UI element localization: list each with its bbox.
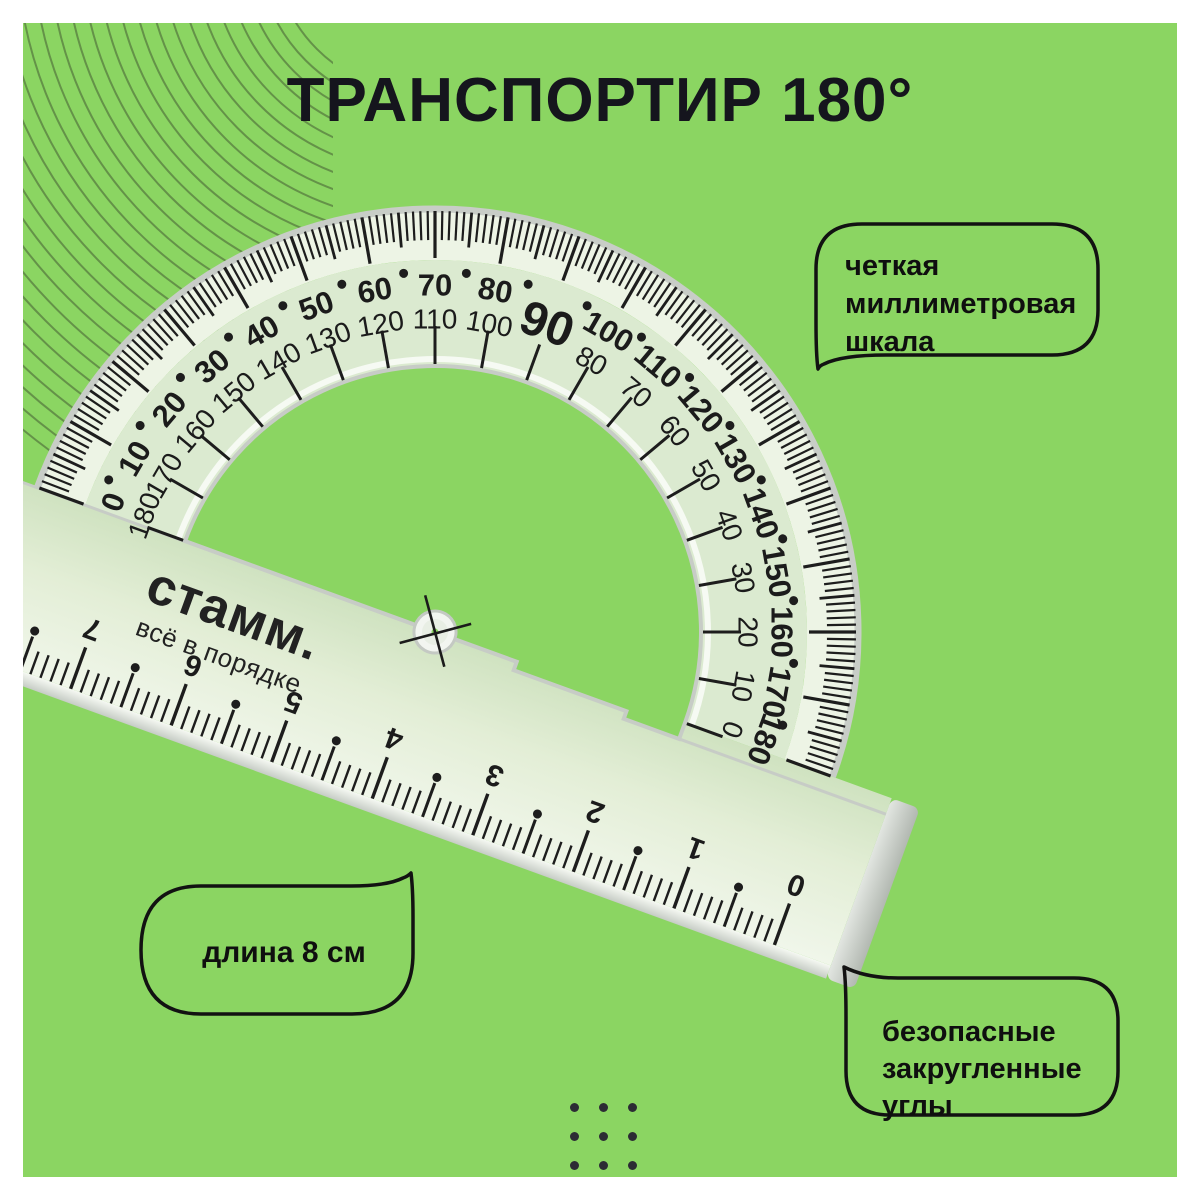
dot [599, 1161, 608, 1170]
callout-line: четкая [845, 247, 1076, 285]
svg-text:60: 60 [355, 270, 395, 310]
callout-line: миллиметровая [845, 285, 1076, 323]
svg-text:30: 30 [725, 560, 761, 596]
svg-text:10: 10 [725, 668, 761, 704]
callout-line: безопасные [882, 1014, 1082, 1051]
callout-mm-scale: четкая миллиметровая шкала [814, 222, 1100, 357]
callout-text: длина 8 см [137, 883, 413, 1017]
dot [599, 1103, 608, 1112]
dot [628, 1132, 637, 1141]
dot [570, 1103, 579, 1112]
dot [570, 1161, 579, 1170]
svg-text:20: 20 [733, 616, 764, 647]
product-card: ТРАНСПОРТИР 180° 01020304050607080901001… [0, 0, 1200, 1200]
protractor-graphic: 0102030405060708090100110120130140150160… [23, 23, 1119, 1030]
callout-length: длина 8 см [137, 883, 413, 1017]
svg-text:80: 80 [475, 270, 515, 310]
dot [628, 1161, 637, 1170]
callout-line: закругленные [882, 1051, 1082, 1088]
green-panel: ТРАНСПОРТИР 180° 01020304050607080901001… [23, 23, 1177, 1177]
svg-text:70: 70 [418, 268, 452, 303]
callout-line: шкала [845, 323, 1076, 361]
dot [570, 1132, 579, 1141]
svg-text:110: 110 [413, 304, 458, 335]
dot [628, 1103, 637, 1112]
dot [599, 1132, 608, 1141]
callout-line: углы [882, 1088, 1082, 1125]
dots-pattern-decoration [560, 1093, 647, 1177]
svg-text:160: 160 [765, 606, 800, 658]
protractor-body [23, 23, 1065, 989]
page: { "title": "ТРАНСПОРТИР 180°", "colors":… [0, 0, 1200, 1200]
callout-safe-corners: безопасные закругленные углы [838, 975, 1120, 1118]
